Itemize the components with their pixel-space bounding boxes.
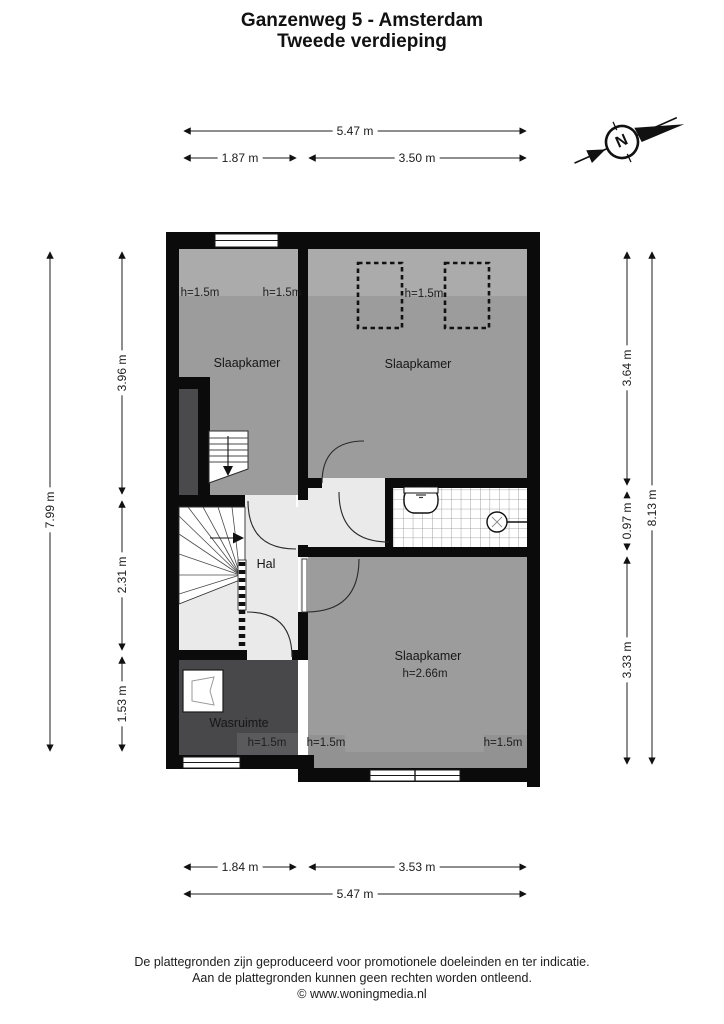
wall-right: [527, 232, 540, 787]
dim-left-seg3: 1.53 m: [115, 682, 129, 727]
wall-shaft-north: [179, 377, 210, 389]
bedroom-bottom-low-band: [308, 752, 527, 768]
room-label-bedroom-top-right: Slaapkamer: [385, 357, 452, 371]
height-label: h=1.5m: [484, 737, 523, 749]
dim-bottom-total: 5.47 m: [333, 887, 378, 901]
height-label: h=1.5m: [405, 288, 444, 300]
height-label: h=1.5m: [263, 287, 302, 299]
height-label: h=1.5m: [248, 737, 287, 749]
window-icon: [183, 757, 240, 768]
window-icon: [215, 234, 278, 247]
washing-machine-icon: [183, 670, 223, 712]
height-label: h=1.5m: [181, 287, 220, 299]
doorway-bedroom-top-right: [322, 478, 385, 488]
wall-bathroom-west: [385, 488, 393, 557]
dim-right-total: 8.13 m: [645, 486, 659, 531]
dim-left-seg1: 3.96 m: [115, 351, 129, 396]
doorway-laundry: [247, 650, 292, 660]
room-label-hall: Hal: [257, 557, 276, 571]
door-leaf-bedroom-bottom: [302, 559, 307, 612]
doorway-bedroom-top-left: [245, 495, 296, 507]
dim-top-left: 1.87 m: [218, 151, 263, 165]
wall-hall-north: [179, 495, 245, 507]
wall-shaft-east: [198, 377, 210, 502]
dim-left-seg2: 2.31 m: [115, 553, 129, 598]
dim-right-seg2: 0.97 m: [620, 499, 634, 544]
wall-divider-stub: [298, 545, 308, 557]
height-label: h=2.66m: [402, 668, 447, 680]
void-shaft: [179, 389, 198, 502]
room-label-bedroom-bottom: Slaapkamer: [395, 649, 462, 663]
footer-disclaimer-line2: Aan de plattegronden kunnen geen rechten…: [0, 971, 724, 985]
wall-left: [166, 232, 179, 769]
wall-laundry-north-a: [179, 650, 247, 660]
height-label: h=1.5m: [307, 737, 346, 749]
wall-divider-bottom: [298, 612, 308, 660]
window-icon: [370, 770, 460, 781]
footer-copyright: © www.woningmedia.nl: [0, 987, 724, 1001]
dim-top-total: 5.47 m: [333, 124, 378, 138]
dim-left-total: 7.99 m: [43, 488, 57, 533]
dim-right-seg1: 3.64 m: [620, 346, 634, 391]
hall-floor-right: [308, 488, 385, 547]
floorplan-page: Ganzenweg 5 - Amsterdam Tweede verdiepin…: [0, 0, 724, 1024]
room-label-laundry: Wasruimte: [209, 716, 268, 730]
wall-divider-top: [298, 248, 308, 500]
footer-disclaimer-line1: De plattegronden zijn geproduceerd voor …: [0, 955, 724, 969]
wall-bedroom-tr-south-a: [308, 478, 322, 488]
room-label-bedroom-top-left: Slaapkamer: [214, 356, 281, 370]
wall-under-bathroom: [308, 547, 540, 557]
dim-bottom-left: 1.84 m: [218, 860, 263, 874]
toilet-cistern: [404, 487, 438, 493]
dim-right-seg3: 3.33 m: [620, 638, 634, 683]
wall-laundry-north-b: [292, 650, 298, 660]
hall-passage: [298, 500, 308, 545]
dim-top-right: 3.50 m: [395, 151, 440, 165]
floorplan-drawing: [0, 0, 724, 1024]
dim-bottom-right: 3.53 m: [395, 860, 440, 874]
